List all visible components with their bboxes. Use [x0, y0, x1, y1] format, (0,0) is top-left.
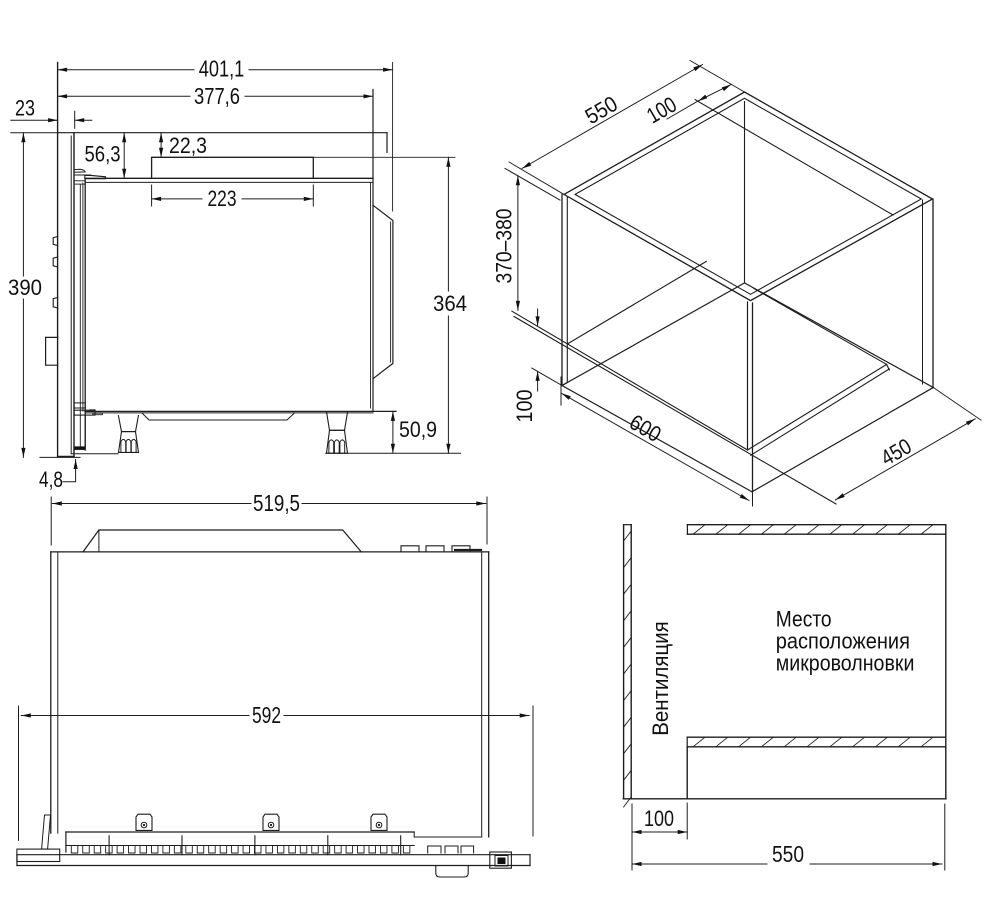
svg-text:223: 223 — [208, 186, 237, 211]
svg-text:390: 390 — [8, 275, 42, 300]
svg-text:4,8: 4,8 — [39, 467, 63, 492]
svg-text:микроволновки: микроволновки — [776, 651, 915, 676]
svg-text:50,9: 50,9 — [399, 417, 437, 442]
svg-text:377,6: 377,6 — [194, 83, 240, 109]
svg-text:592: 592 — [252, 702, 281, 728]
svg-text:100: 100 — [512, 390, 537, 423]
svg-text:100: 100 — [644, 806, 674, 831]
svg-text:401,1: 401,1 — [199, 55, 245, 81]
svg-text:550: 550 — [772, 841, 804, 867]
svg-text:370–380: 370–380 — [492, 209, 517, 284]
svg-text:56,3: 56,3 — [85, 142, 121, 167]
svg-text:23: 23 — [15, 96, 35, 121]
svg-text:519,5: 519,5 — [253, 490, 300, 516]
svg-text:22,3: 22,3 — [169, 133, 207, 158]
svg-text:364: 364 — [433, 291, 467, 316]
svg-text:Вентиляция: Вентиляция — [648, 621, 673, 736]
